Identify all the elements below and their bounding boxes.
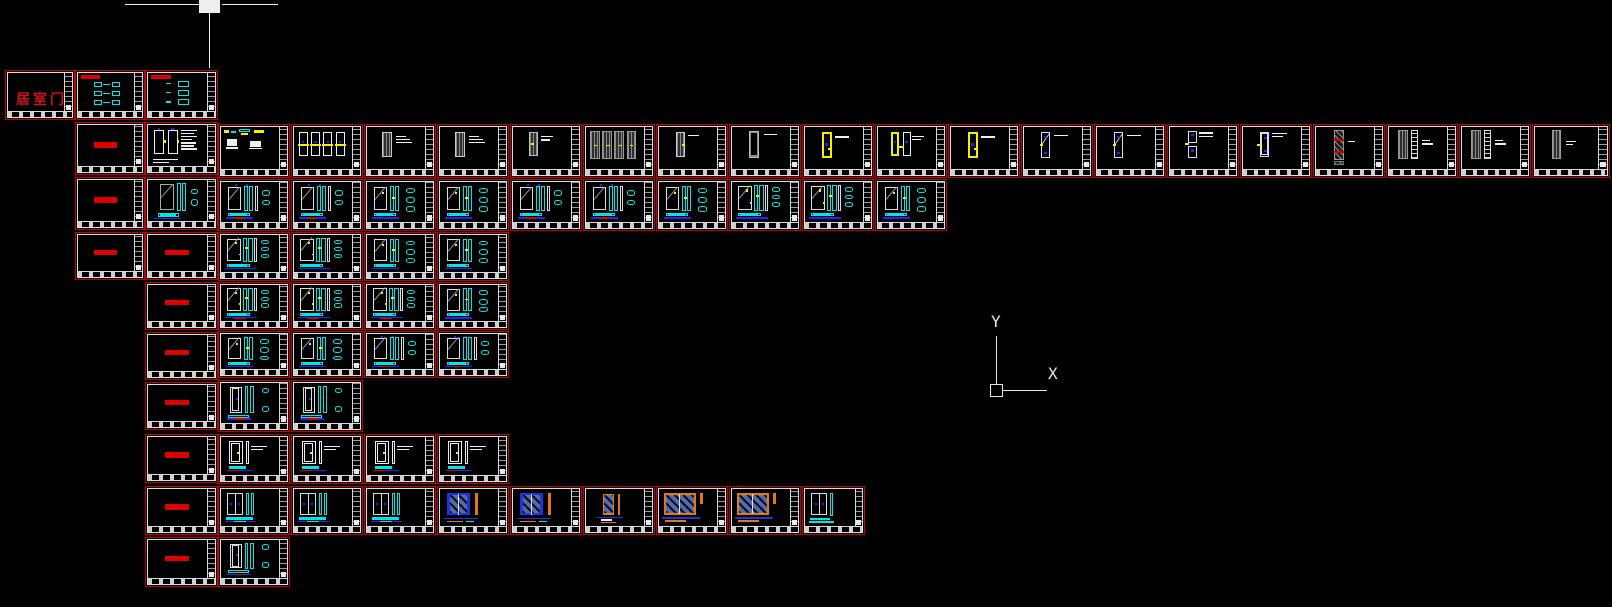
- drawing-sheet-red-bar[interactable]: [145, 537, 218, 587]
- drawing-sheet-blue-hatch[interactable]: [510, 486, 582, 535]
- drawing-geometry: [249, 337, 253, 359]
- drawing-geometry: [1495, 140, 1503, 141]
- drawing-geometry: [819, 493, 820, 515]
- sheet-drawing-area: [1537, 129, 1595, 167]
- drawing-sheet-gray-outline[interactable]: [729, 124, 801, 178]
- drawing-geometry: [383, 452, 386, 454]
- drawing-geometry: [455, 244, 458, 246]
- drawing-geometry: [262, 562, 269, 568]
- title-block-strip: [425, 334, 433, 370]
- drawing-geometry: [773, 493, 776, 503]
- title-block-stamp: [281, 416, 287, 421]
- drawing-sheet-stack-door[interactable]: [1167, 124, 1239, 178]
- sheet-border: [877, 126, 945, 176]
- sheet-drawing-area: [150, 287, 204, 321]
- title-block-stamp: [719, 162, 725, 168]
- drawing-geometry: [829, 195, 832, 197]
- drawing-geometry: [94, 142, 117, 148]
- drawing-geometry: [229, 466, 246, 469]
- drawing-geometry: [262, 544, 269, 550]
- sheet-drawing-area: [515, 184, 568, 221]
- drawing-geometry: [103, 93, 109, 94]
- drawing-geometry: [465, 299, 468, 301]
- drawing-sheet-orange-door[interactable]: [583, 486, 655, 535]
- sheet-border: [77, 124, 143, 173]
- sheet-border: [877, 181, 945, 229]
- drawing-sheet-gray-door[interactable]: [364, 124, 436, 178]
- drawing-sheet-panel-single[interactable]: [1532, 124, 1610, 178]
- drawing-geometry: [334, 247, 342, 251]
- drawing-geometry: [384, 503, 386, 505]
- sheet-border: [512, 126, 580, 176]
- drawing-geometry: [335, 388, 342, 394]
- drawing-sheet-diag-door[interactable]: [1021, 124, 1093, 178]
- drawing-geometry: [318, 386, 321, 413]
- drawing-sheet-cyan-door[interactable]: [583, 179, 655, 231]
- drawing-geometry: [94, 100, 102, 106]
- drawing-sheet-cyan-double[interactable]: [364, 486, 436, 535]
- title-block-strip: [498, 334, 506, 370]
- drawing-geometry: [883, 217, 909, 218]
- drawing-geometry: [181, 139, 192, 140]
- drawing-sheet-cyan-door3[interactable]: [218, 282, 290, 330]
- drawing-geometry: [1040, 144, 1043, 146]
- sheet-bottom-strip: [148, 111, 215, 117]
- drawing-geometry: [827, 185, 831, 211]
- drawing-sheet-cyan-door2[interactable]: [437, 179, 509, 231]
- drawing-geometry: [1257, 144, 1261, 146]
- sheet-bottom-strip: [294, 321, 360, 327]
- sheet-drawing-area: [80, 75, 131, 110]
- sheet-drawing-area: [369, 237, 422, 271]
- drawing-geometry: [810, 518, 830, 520]
- sheet-border: [585, 126, 653, 176]
- drawing-sheet-cyan-door[interactable]: [291, 179, 363, 231]
- drawing-geometry: [838, 185, 841, 211]
- sheet-drawing-area: [953, 129, 1006, 167]
- title-block-strip: [498, 437, 506, 476]
- sheet-bottom-strip: [659, 222, 725, 228]
- drawing-sheet-red-bar[interactable]: [75, 122, 145, 175]
- drawing-geometry: [397, 446, 413, 447]
- drawing-geometry: [166, 101, 171, 102]
- sheet-border: [147, 234, 216, 278]
- drawing-geometry: [112, 100, 120, 106]
- drawing-geometry: [449, 362, 466, 364]
- title-block-stamp: [573, 520, 579, 525]
- drawing-geometry: [479, 197, 489, 204]
- drawing-sheet-red-bar[interactable]: [145, 486, 218, 535]
- drawing-geometry: [541, 136, 553, 137]
- drawing-geometry: [243, 288, 247, 312]
- title-block-strip: [644, 182, 652, 223]
- drawing-geometry: [1422, 140, 1430, 141]
- sheet-drawing-area: [296, 439, 349, 474]
- sheet-drawing-area: [150, 439, 204, 473]
- drawing-geometry: [750, 132, 757, 156]
- drawing-sheet-cyan-door[interactable]: [437, 331, 509, 378]
- drawing-sheet-gray-door2[interactable]: [510, 124, 582, 178]
- drawing-geometry: [903, 132, 910, 156]
- drawing-sheet-cyan-door2[interactable]: [437, 232, 509, 281]
- drawing-geometry: [752, 494, 753, 514]
- drawing-geometry: [756, 195, 759, 197]
- drawing-geometry: [396, 136, 406, 137]
- drawing-geometry: [819, 189, 822, 191]
- drawing-sheet-blue-hatch-wide[interactable]: [729, 486, 801, 535]
- sheet-border: [1461, 126, 1529, 176]
- drawing-geometry: [319, 347, 322, 349]
- drawing-sheet-red-bar[interactable]: [145, 232, 218, 280]
- sheet-border: [220, 234, 288, 279]
- sheet-border: [439, 234, 507, 279]
- drawing-geometry: [302, 141, 304, 143]
- drawing-sheet-white-frames[interactable]: [291, 124, 363, 178]
- sheet-drawing-area: [661, 184, 714, 221]
- title-block-stamp: [500, 215, 506, 220]
- sheet-border: [804, 181, 872, 229]
- sheet-drawing-area: [369, 287, 422, 321]
- drawing-sheet-detail-blobs[interactable]: [218, 124, 290, 178]
- drawing-geometry: [813, 214, 831, 216]
- drawing-sheet-cyan-door2[interactable]: [875, 179, 947, 231]
- drawing-geometry: [395, 337, 399, 359]
- sheet-border: [147, 179, 216, 228]
- drawing-geometry: [322, 144, 333, 146]
- drawing-geometry: [1127, 135, 1141, 136]
- drawing-geometry: [845, 187, 853, 192]
- drawing-geometry: [376, 362, 393, 364]
- drawing-geometry: [700, 493, 703, 503]
- drawing-geometry: [334, 290, 342, 294]
- drawing-sheet-cyan-door3[interactable]: [218, 232, 290, 281]
- drawing-sheet-cyan-door[interactable]: [510, 179, 582, 231]
- sheet-border: [147, 436, 216, 481]
- drawing-geometry: [243, 238, 247, 262]
- title-block-strip: [498, 489, 506, 527]
- drawing-sheet-white-door[interactable]: [291, 434, 363, 484]
- sheet-border: [293, 488, 361, 533]
- drawing-sheet-yellow-door[interactable]: [802, 124, 874, 178]
- drawing-geometry: [449, 314, 466, 316]
- drawing-geometry: [81, 75, 100, 79]
- sheet-drawing-area: [1245, 129, 1298, 167]
- drawing-sheet-red-bar[interactable]: [145, 282, 218, 330]
- drawing-sheet-schematic[interactable]: [75, 70, 145, 120]
- drawing-geometry: [238, 503, 240, 505]
- drawing-geometry: [254, 238, 257, 262]
- drawing-sheet-cyan-double[interactable]: [218, 486, 290, 535]
- drawing-sheet-cyan-door3[interactable]: [729, 179, 801, 231]
- sheet-bottom-strip: [221, 475, 287, 481]
- title-block-stamp: [209, 159, 215, 164]
- title-block-strip: [1228, 127, 1236, 170]
- drawing-geometry: [181, 142, 196, 143]
- drawing-geometry: [601, 522, 617, 523]
- title-block-stamp: [1157, 162, 1163, 168]
- title-block-strip: [207, 385, 215, 422]
- sheet-drawing-area: [588, 491, 641, 525]
- title-block-strip: [498, 235, 506, 273]
- title-block-stamp: [354, 315, 360, 320]
- drawing-sheet-cyan-door2[interactable]: [218, 331, 290, 378]
- drawing-sheet-red-bar[interactable]: [145, 434, 218, 483]
- sheet-border: [658, 181, 726, 229]
- drawing-geometry: [391, 297, 394, 299]
- sheet-bottom-strip: [440, 169, 506, 175]
- sheet-drawing-area: [369, 129, 422, 167]
- title-block-strip: [134, 180, 142, 222]
- drawing-geometry: [227, 139, 237, 146]
- title-block-stamp: [500, 315, 506, 320]
- drawing-geometry: [335, 144, 346, 146]
- drawing-geometry: [381, 493, 382, 514]
- title-block-stamp: [719, 520, 725, 525]
- drawing-geometry: [698, 188, 708, 193]
- sheet-bottom-strip: [367, 169, 433, 175]
- drawing-sheet-panel-pair[interactable]: [1459, 124, 1531, 178]
- sheet-drawing-area: [442, 129, 495, 167]
- drawing-geometry: [322, 337, 326, 359]
- drawing-geometry: [445, 217, 471, 218]
- title-block-strip: [790, 127, 798, 170]
- drawing-sheet-cyan-door[interactable]: [218, 179, 290, 231]
- drawing-geometry: [165, 452, 189, 458]
- drawing-geometry: [177, 140, 180, 143]
- drawing-geometry: [893, 192, 896, 194]
- drawing-geometry: [596, 517, 622, 518]
- title-block-stamp: [427, 520, 433, 525]
- title-block-strip: [717, 489, 725, 527]
- drawing-sheet-cyan-door3[interactable]: [291, 232, 363, 281]
- title-block-stamp: [646, 215, 652, 220]
- sheet-drawing-area: [296, 491, 349, 525]
- drawing-sheet-cyan-door3[interactable]: [291, 282, 363, 330]
- title-block-stamp: [354, 162, 360, 168]
- title-block-strip: [279, 182, 287, 223]
- drawing-geometry: [664, 217, 690, 218]
- title-block-strip: [207, 73, 215, 112]
- drawing-geometry: [1422, 143, 1434, 145]
- drawing-geometry: [94, 197, 117, 203]
- drawing-sheet-blue-hatch-wide[interactable]: [656, 486, 728, 535]
- sheet-drawing-area: [442, 237, 495, 271]
- drawing-geometry: [222, 4, 278, 5]
- drawing-sheet-legend[interactable]: [145, 122, 218, 175]
- title-block-stamp: [209, 365, 215, 370]
- drawing-geometry: [228, 415, 249, 418]
- drawing-sheet-yellow-door[interactable]: [948, 124, 1020, 178]
- drawing-sheet-cyan-double[interactable]: [291, 486, 363, 535]
- drawing-sheet-diag-door[interactable]: [1094, 124, 1166, 178]
- drawing-geometry: [380, 366, 391, 367]
- drawing-geometry: [1054, 135, 1068, 136]
- drawing-sheet-red-bar[interactable]: [75, 177, 145, 230]
- sheet-border: [950, 126, 1018, 176]
- drawing-sheet-gray-door[interactable]: [437, 124, 509, 178]
- drawing-geometry: [903, 197, 906, 199]
- sheet-border: [1096, 126, 1164, 176]
- drawing-geometry: [372, 517, 398, 520]
- sheet-bottom-strip: [367, 272, 433, 278]
- sheet-drawing-area: [1099, 129, 1152, 167]
- drawing-geometry: [251, 493, 254, 516]
- drawing-geometry: [759, 185, 763, 211]
- drawing-geometry: [815, 503, 817, 505]
- drawing-sheet-cyan-tall[interactable]: [218, 380, 290, 432]
- drawing-sheet-cyan-door[interactable]: [364, 331, 436, 378]
- drawing-geometry: [547, 186, 550, 211]
- sheet-bottom-strip: [732, 526, 798, 532]
- drawing-geometry: [244, 186, 248, 211]
- drawing-sheet-cyan-plain[interactable]: [802, 486, 865, 535]
- drawing-geometry: [381, 292, 384, 294]
- drawing-geometry: [371, 317, 403, 318]
- drawing-geometry: [262, 190, 270, 196]
- drawing-geometry: [298, 144, 309, 146]
- drawing-sheet-hatch-red[interactable]: [1313, 124, 1385, 178]
- title-block-stamp: [281, 520, 287, 525]
- sheet-drawing-area: [442, 336, 495, 369]
- drawing-geometry: [764, 134, 778, 135]
- title-block-strip: [207, 125, 215, 167]
- drawing-geometry: [541, 139, 549, 140]
- drawing-sheet-gray-multi[interactable]: [583, 124, 655, 178]
- drawing-geometry: [153, 162, 169, 163]
- drawing-sheet-white-door[interactable]: [218, 434, 290, 484]
- drawing-geometry: [166, 83, 171, 84]
- sheet-border: [293, 284, 361, 328]
- title-block-strip: [352, 127, 360, 170]
- drawing-geometry: [307, 521, 320, 522]
- title-block-strip: [279, 334, 287, 370]
- sheet-bottom-strip: [367, 475, 433, 481]
- drawing-geometry: [392, 441, 395, 464]
- drawing-geometry: [531, 143, 534, 145]
- sheet-border: [439, 284, 507, 328]
- sheet-bottom-strip: [221, 321, 287, 327]
- drawing-sheet-red-bar[interactable]: [145, 332, 218, 380]
- drawing-geometry: [382, 244, 385, 246]
- drawing-sheet-schematic2[interactable]: [145, 70, 218, 120]
- drawing-geometry: [163, 140, 166, 143]
- sheet-border: [731, 126, 799, 176]
- drawing-sheet-cyan-door2[interactable]: [656, 179, 728, 231]
- drawing-geometry: [627, 190, 635, 196]
- drawing-sheet-cyan-door2[interactable]: [291, 331, 363, 378]
- drawing-sheet-cyan-door2[interactable]: [364, 232, 436, 281]
- sheet-drawing-area: [807, 491, 853, 525]
- title-block-strip: [1520, 127, 1528, 170]
- drawing-sheet-panel-pair[interactable]: [1386, 124, 1458, 178]
- title-block-strip: [134, 235, 142, 272]
- drawing-sheet-gray-door-y[interactable]: [656, 124, 728, 178]
- sheet-drawing-area: [150, 237, 204, 271]
- sheet-border: [731, 488, 799, 533]
- drawing-geometry: [310, 144, 321, 146]
- drawing-geometry: [912, 136, 925, 137]
- sheet-border: [1023, 126, 1091, 176]
- drawing-sheet-cyan-door3[interactable]: [802, 179, 874, 231]
- drawing-geometry: [395, 186, 399, 211]
- sheet-drawing-area: [442, 439, 495, 474]
- drawing-sheet-cyan-tall[interactable]: [291, 380, 363, 432]
- drawing-geometry: [1334, 130, 1345, 160]
- drawing-sheet-cyan-door2[interactable]: [437, 282, 509, 330]
- drawing-sheet-yellow-blue[interactable]: [875, 124, 947, 178]
- drawing-geometry: [235, 574, 246, 575]
- sheet-drawing-area: [150, 491, 204, 525]
- drawing-sheet-white-door[interactable]: [437, 434, 509, 484]
- drawing-geometry: [381, 336, 384, 338]
- drawing-geometry: [1398, 130, 1408, 159]
- sheet-border: [439, 126, 507, 176]
- sheet-drawing-area: [296, 237, 349, 271]
- title-block-stamp: [427, 162, 433, 168]
- sheet-drawing-area: [223, 237, 276, 271]
- drawing-geometry: [327, 141, 329, 143]
- drawing-sheet-plain-door[interactable]: [1240, 124, 1312, 178]
- sheet-border: [293, 382, 361, 430]
- drawing-geometry: [395, 239, 399, 262]
- title-block-strip: [936, 182, 944, 223]
- drawing-geometry: [178, 81, 189, 87]
- sheet-border: [293, 126, 361, 176]
- sheet-drawing-area: [223, 385, 276, 422]
- sheet-border: [804, 126, 872, 176]
- drawing-sheet-cyan-solo[interactable]: [145, 177, 218, 230]
- drawing-sheet-red-bar[interactable]: [145, 382, 218, 430]
- drawing-sheet-cyan-door2[interactable]: [364, 179, 436, 231]
- drawing-geometry: [310, 452, 313, 454]
- sheet-border: [220, 488, 288, 533]
- drawing-geometry: [319, 441, 322, 464]
- drawing-sheet-white-door[interactable]: [364, 434, 436, 484]
- drawing-geometry: [125, 4, 201, 5]
- sheet-bottom-strip: [221, 272, 287, 278]
- drawing-sheet-red-bar[interactable]: [75, 232, 145, 280]
- drawing-geometry: [1117, 136, 1120, 138]
- cad-canvas[interactable]: Y X 居室门: [0, 0, 1612, 607]
- sheet-bottom-strip: [440, 222, 506, 228]
- drawing-sheet-blue-hatch[interactable]: [437, 486, 509, 535]
- drawing-geometry: [445, 268, 471, 269]
- drawing-geometry: [229, 314, 247, 316]
- title-block-stamp: [792, 162, 798, 168]
- drawing-geometry: [237, 452, 240, 454]
- drawing-geometry: [740, 214, 758, 216]
- drawing-geometry: [1188, 131, 1198, 143]
- drawing-sheet-cyan-door3[interactable]: [364, 282, 436, 330]
- sheet-drawing-area: [515, 129, 568, 167]
- sheet-bottom-strip: [294, 475, 360, 481]
- sheet-bottom-strip: [78, 166, 142, 172]
- drawing-geometry: [394, 288, 398, 312]
- title-block-strip: [207, 285, 215, 322]
- title-block-strip: [352, 489, 360, 527]
- drawing-geometry: [1552, 130, 1561, 159]
- drawing-sheet-cyan-tall[interactable]: [218, 537, 290, 587]
- drawing-geometry: [974, 148, 977, 150]
- title-block-stamp: [1011, 162, 1017, 168]
- sheet-border: [1169, 126, 1237, 176]
- drawing-geometry: [334, 303, 342, 307]
- drawing-geometry: [230, 503, 232, 505]
- ucs-x-label: X: [1048, 364, 1058, 383]
- drawing-sheet-title-text[interactable]: 居室门: [5, 70, 75, 120]
- sheet-drawing-area: [80, 127, 131, 165]
- drawing-geometry: [333, 339, 343, 344]
